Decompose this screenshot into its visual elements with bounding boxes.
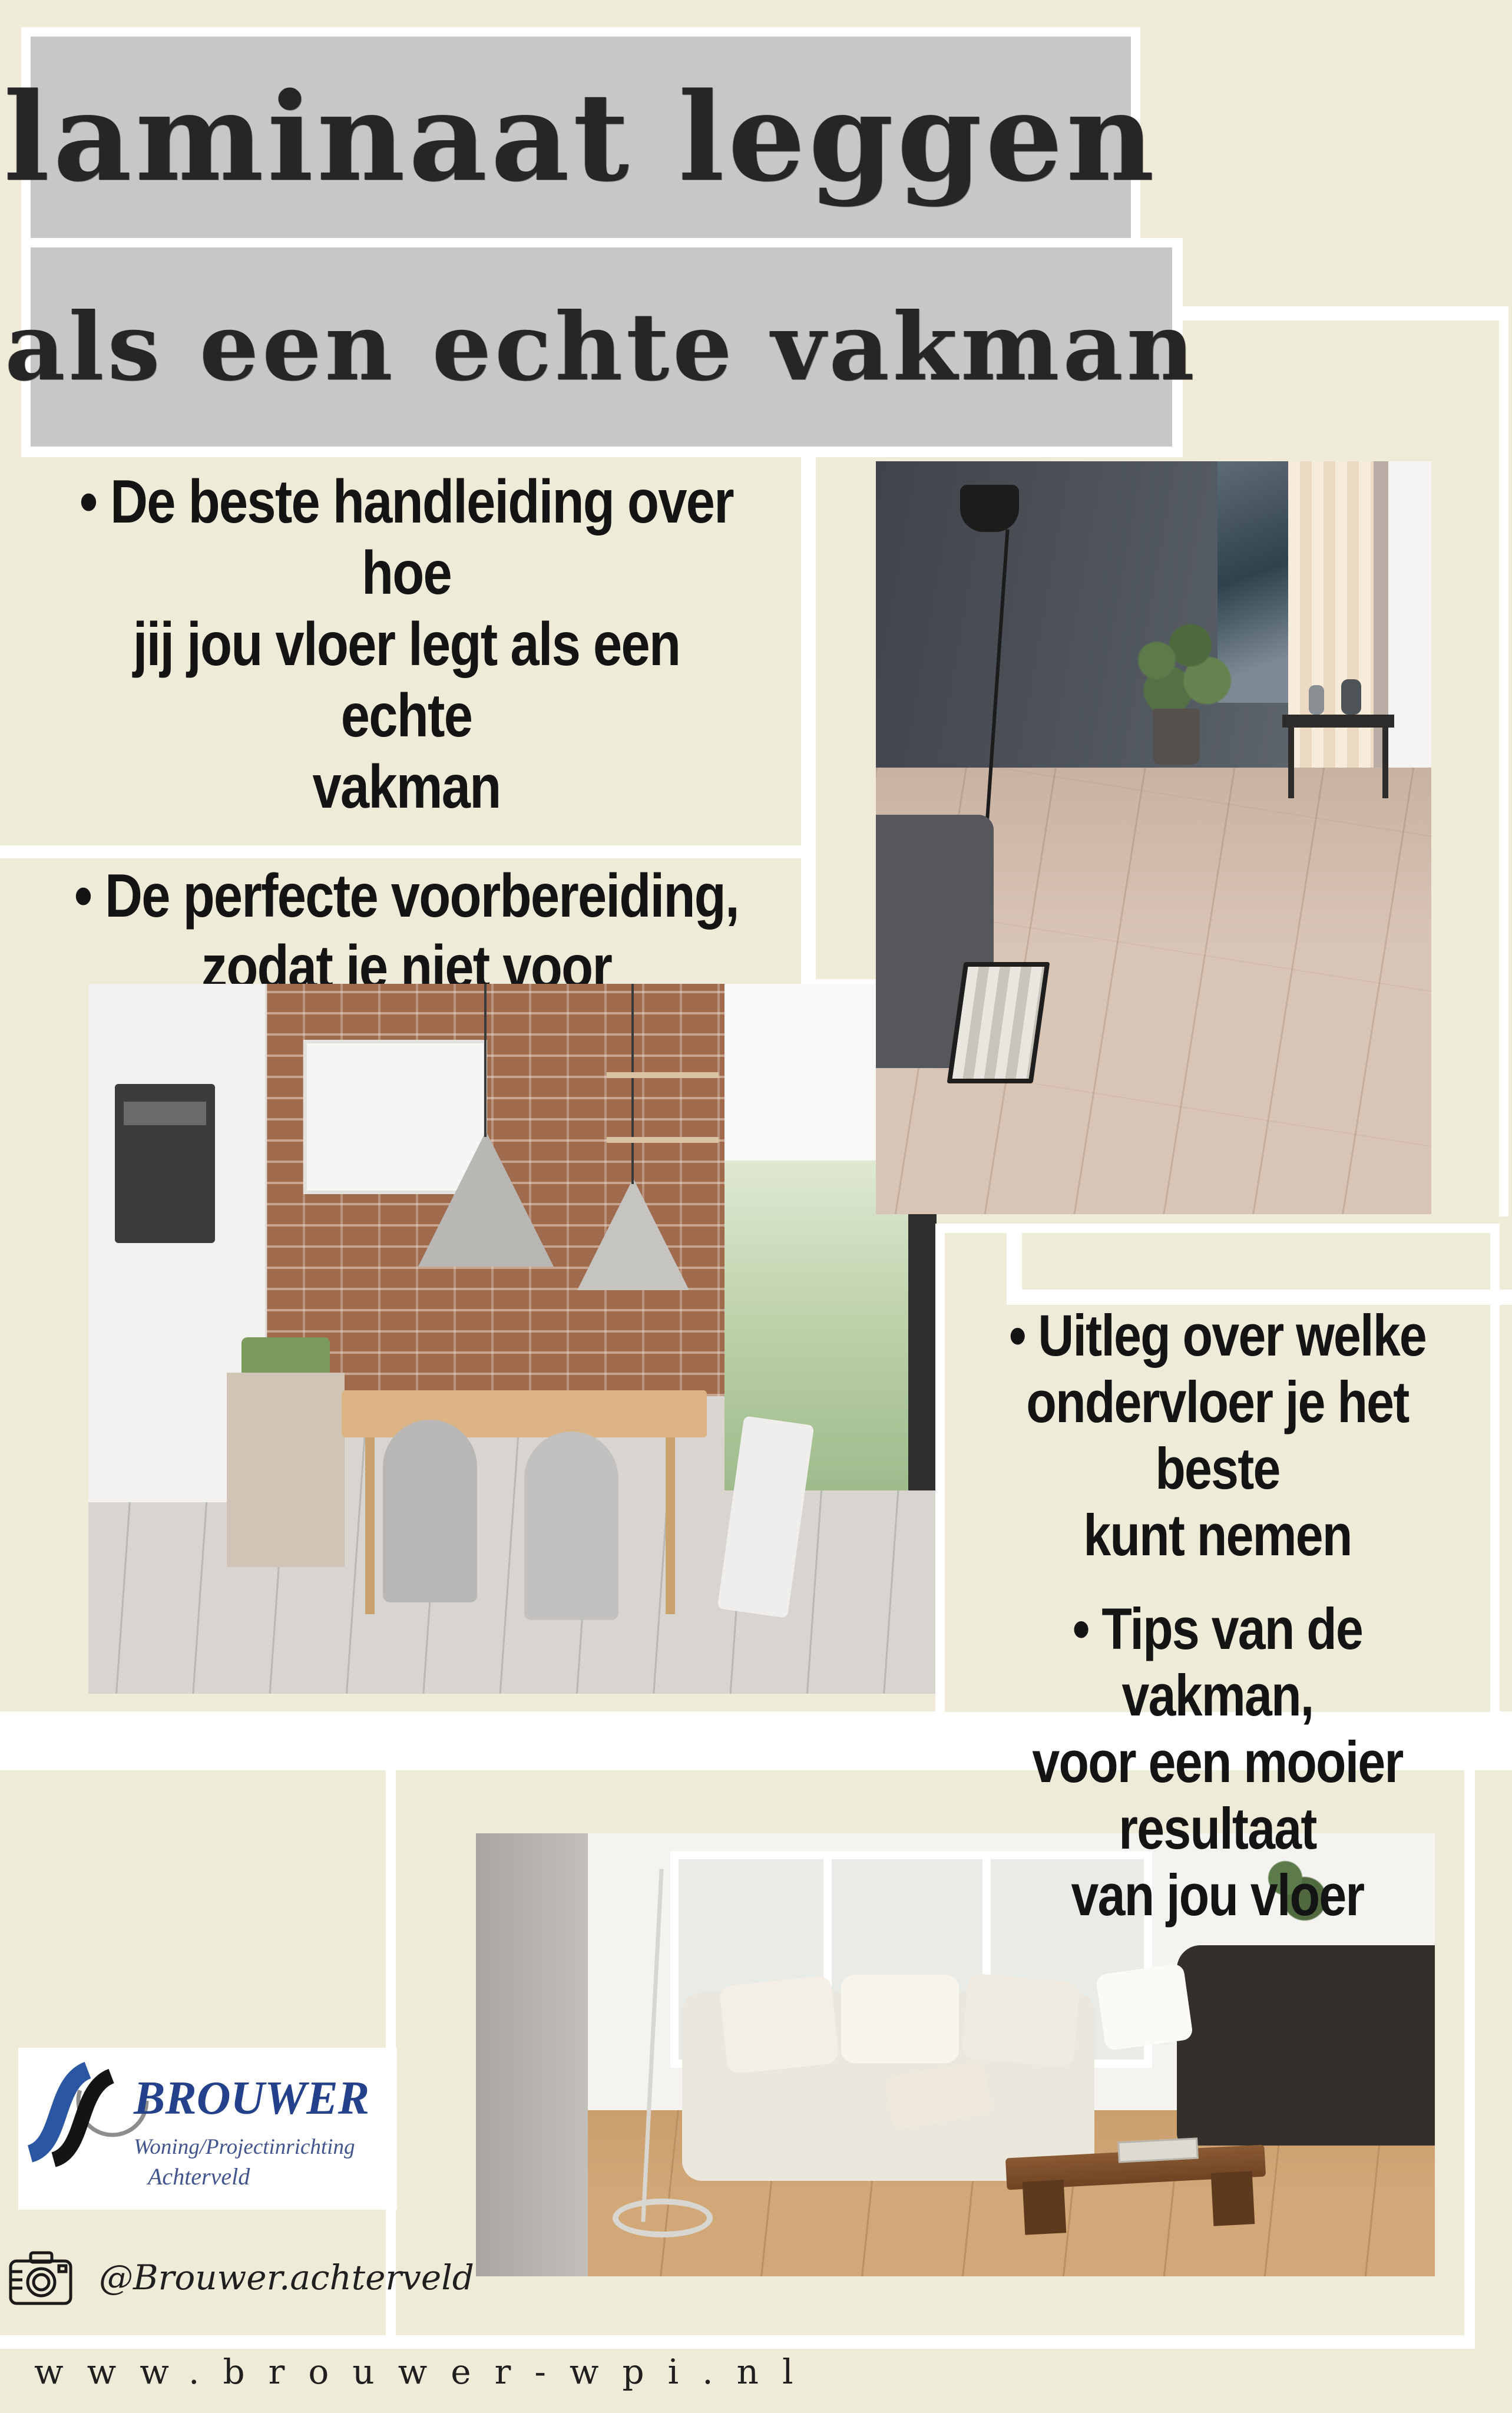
chair [524, 1432, 618, 1620]
features-bullets: • Uitleg over welke ondervloer je het be… [984, 1302, 1451, 1928]
bullet-line: • De perfecte voorbereiding, [66, 861, 747, 932]
title-panel-2: als een echte vakman [31, 247, 1172, 447]
magazine-rack [947, 962, 1050, 1083]
vase [1309, 685, 1324, 715]
bullet-line: ondervloer je het beste [984, 1369, 1451, 1502]
title-line-2: als een echte vakman [5, 293, 1198, 402]
book-stack [1117, 2137, 1199, 2163]
plant-pot [1153, 709, 1200, 765]
brouwer-logo: BROUWER Woning/Projectinrichting Achterv… [18, 2048, 397, 2210]
title-panel-1: laminaat leggen [31, 37, 1131, 238]
bullet-line: vakman [66, 752, 747, 823]
photo-kitchen-dining [88, 984, 937, 1694]
bullet-line: voor een mooier resultaat [984, 1728, 1451, 1862]
dark-sofa [1177, 1945, 1435, 2146]
camera-icon [7, 2246, 75, 2310]
bullet-line: jij jou vloer legt als een echte [66, 609, 747, 752]
divider [801, 386, 816, 987]
bullet-line: • De beste handleiding over hoe [66, 467, 747, 609]
camera-flash [59, 2266, 66, 2272]
logo-subtitle-2: Achterveld [146, 2163, 250, 2190]
title-line-1: laminaat leggen [4, 66, 1158, 209]
divider [1464, 1711, 1475, 2349]
bullet-line: • Uitleg over welke [984, 1302, 1451, 1369]
logo-subtitle-1: Woning/Projectinrichting [134, 2135, 355, 2159]
table-leg [1023, 2180, 1067, 2235]
camera-top [31, 2253, 52, 2262]
chair [383, 1420, 477, 1602]
bullet-item: • De beste handleiding over hoe jij jou … [66, 467, 747, 823]
wall-column [476, 1833, 588, 2276]
camera-lens-outer [28, 2269, 55, 2296]
lamp-cord [631, 984, 634, 1184]
instagram-handle: @Brouwer.achterveld [99, 2257, 474, 2298]
camera-lens-inner [34, 2275, 49, 2290]
bullet-line: van jou vloer [984, 1862, 1451, 1928]
console-leg [1382, 728, 1388, 798]
plant [1123, 620, 1235, 720]
logo-brand-text: BROUWER [133, 2072, 369, 2124]
photo-room-dark-wall [876, 461, 1431, 1214]
divider [1499, 306, 1508, 1217]
console-table [1282, 715, 1394, 728]
wall-cabinet [303, 1040, 487, 1194]
dining-table [342, 1390, 707, 1437]
website-url: www.brouwer-wpi.nl [34, 2352, 817, 2392]
kitchen-island [227, 1373, 345, 1567]
table-leg [365, 1437, 375, 1614]
camera-grip-lines [11, 2272, 22, 2288]
shelf [607, 1137, 719, 1143]
shelf [607, 1072, 719, 1078]
lamp-cord [484, 984, 487, 1137]
divider [0, 2335, 1464, 2349]
sofa-pillow [719, 1975, 840, 2074]
sofa-pillow [1096, 1963, 1194, 2051]
table-leg [1211, 2171, 1255, 2226]
oven-display [124, 1102, 206, 1125]
vase [1341, 679, 1361, 715]
bullet-item: • Tips van de vakman, voor een mooier re… [984, 1595, 1451, 1928]
console-leg [1288, 728, 1294, 798]
poster-page: laminaat leggen als een echte vakman • D… [0, 0, 1512, 2413]
divider [1172, 306, 1502, 320]
sofa-pillow [841, 1975, 959, 2063]
bullet-line: • Tips van de vakman, [984, 1595, 1451, 1728]
bullet-line: kunt nemen [984, 1502, 1451, 1568]
sofa-pillow [961, 1973, 1080, 2068]
bullet-item: • Uitleg over welke ondervloer je het be… [984, 1302, 1451, 1568]
table-leg [666, 1437, 675, 1614]
floor-lamp-head [960, 485, 1019, 532]
logo-card: BROUWER Woning/Projectinrichting Achterv… [18, 2048, 397, 2210]
floor-lamp-base [613, 2199, 713, 2237]
